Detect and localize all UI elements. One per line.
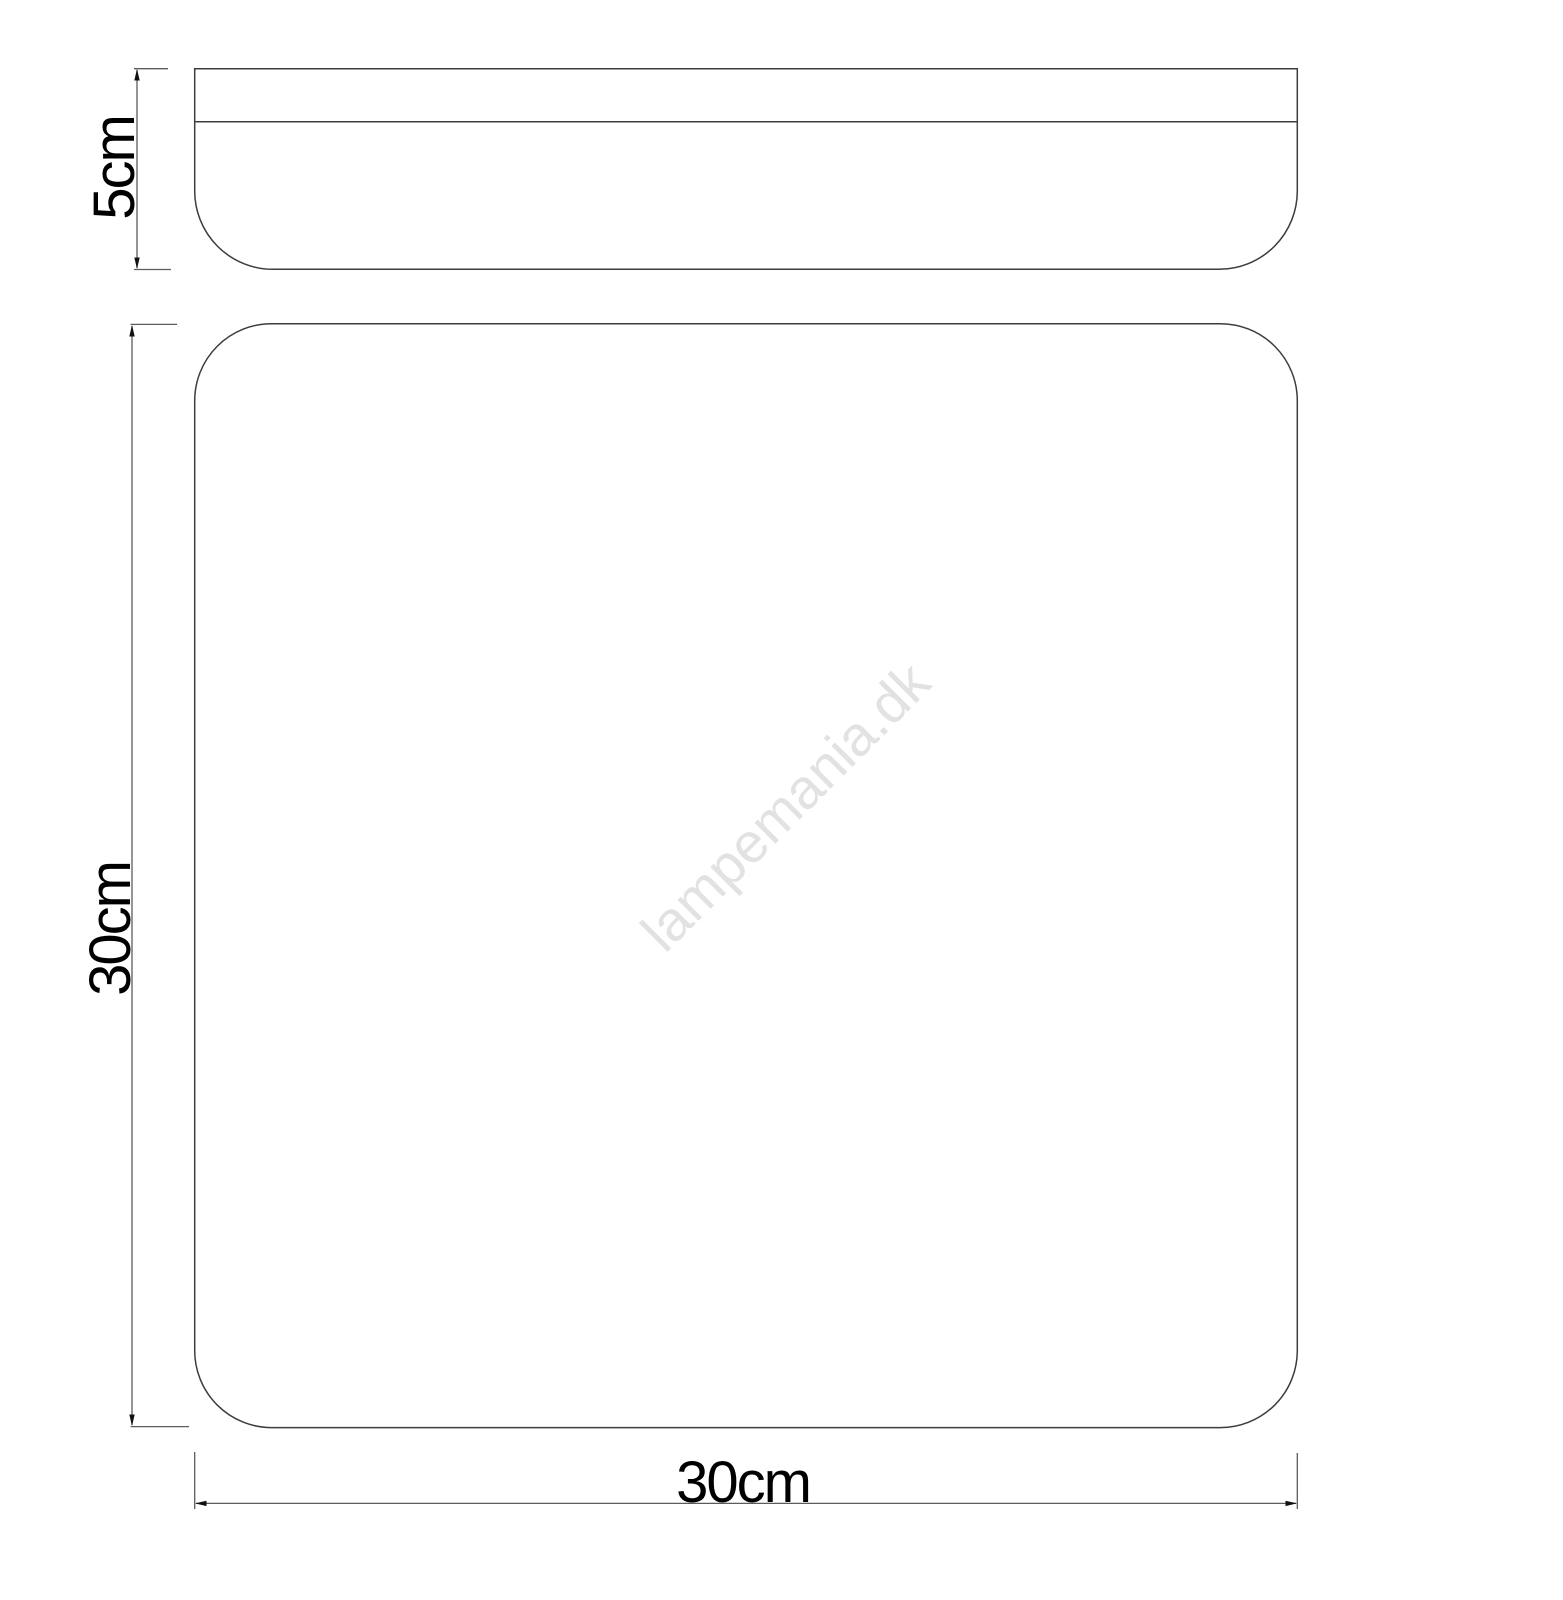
technical-drawing-canvas: 5cm 30cm 30cm lampemania.dk: [0, 0, 1563, 1600]
dim-width-label: 30cm: [633, 1453, 853, 1513]
dim-depth-arrow-up: [129, 325, 134, 337]
side-view-outline: [195, 69, 1298, 270]
side-view: [195, 69, 1298, 270]
dim-depth-label: 30cm: [81, 819, 141, 1039]
dim-height-label: 5cm: [85, 58, 145, 278]
dim-width-arrow-right: [1286, 1501, 1298, 1506]
dim-depth-arrow-down: [129, 1415, 134, 1427]
dim-width-arrow-left: [195, 1501, 207, 1506]
